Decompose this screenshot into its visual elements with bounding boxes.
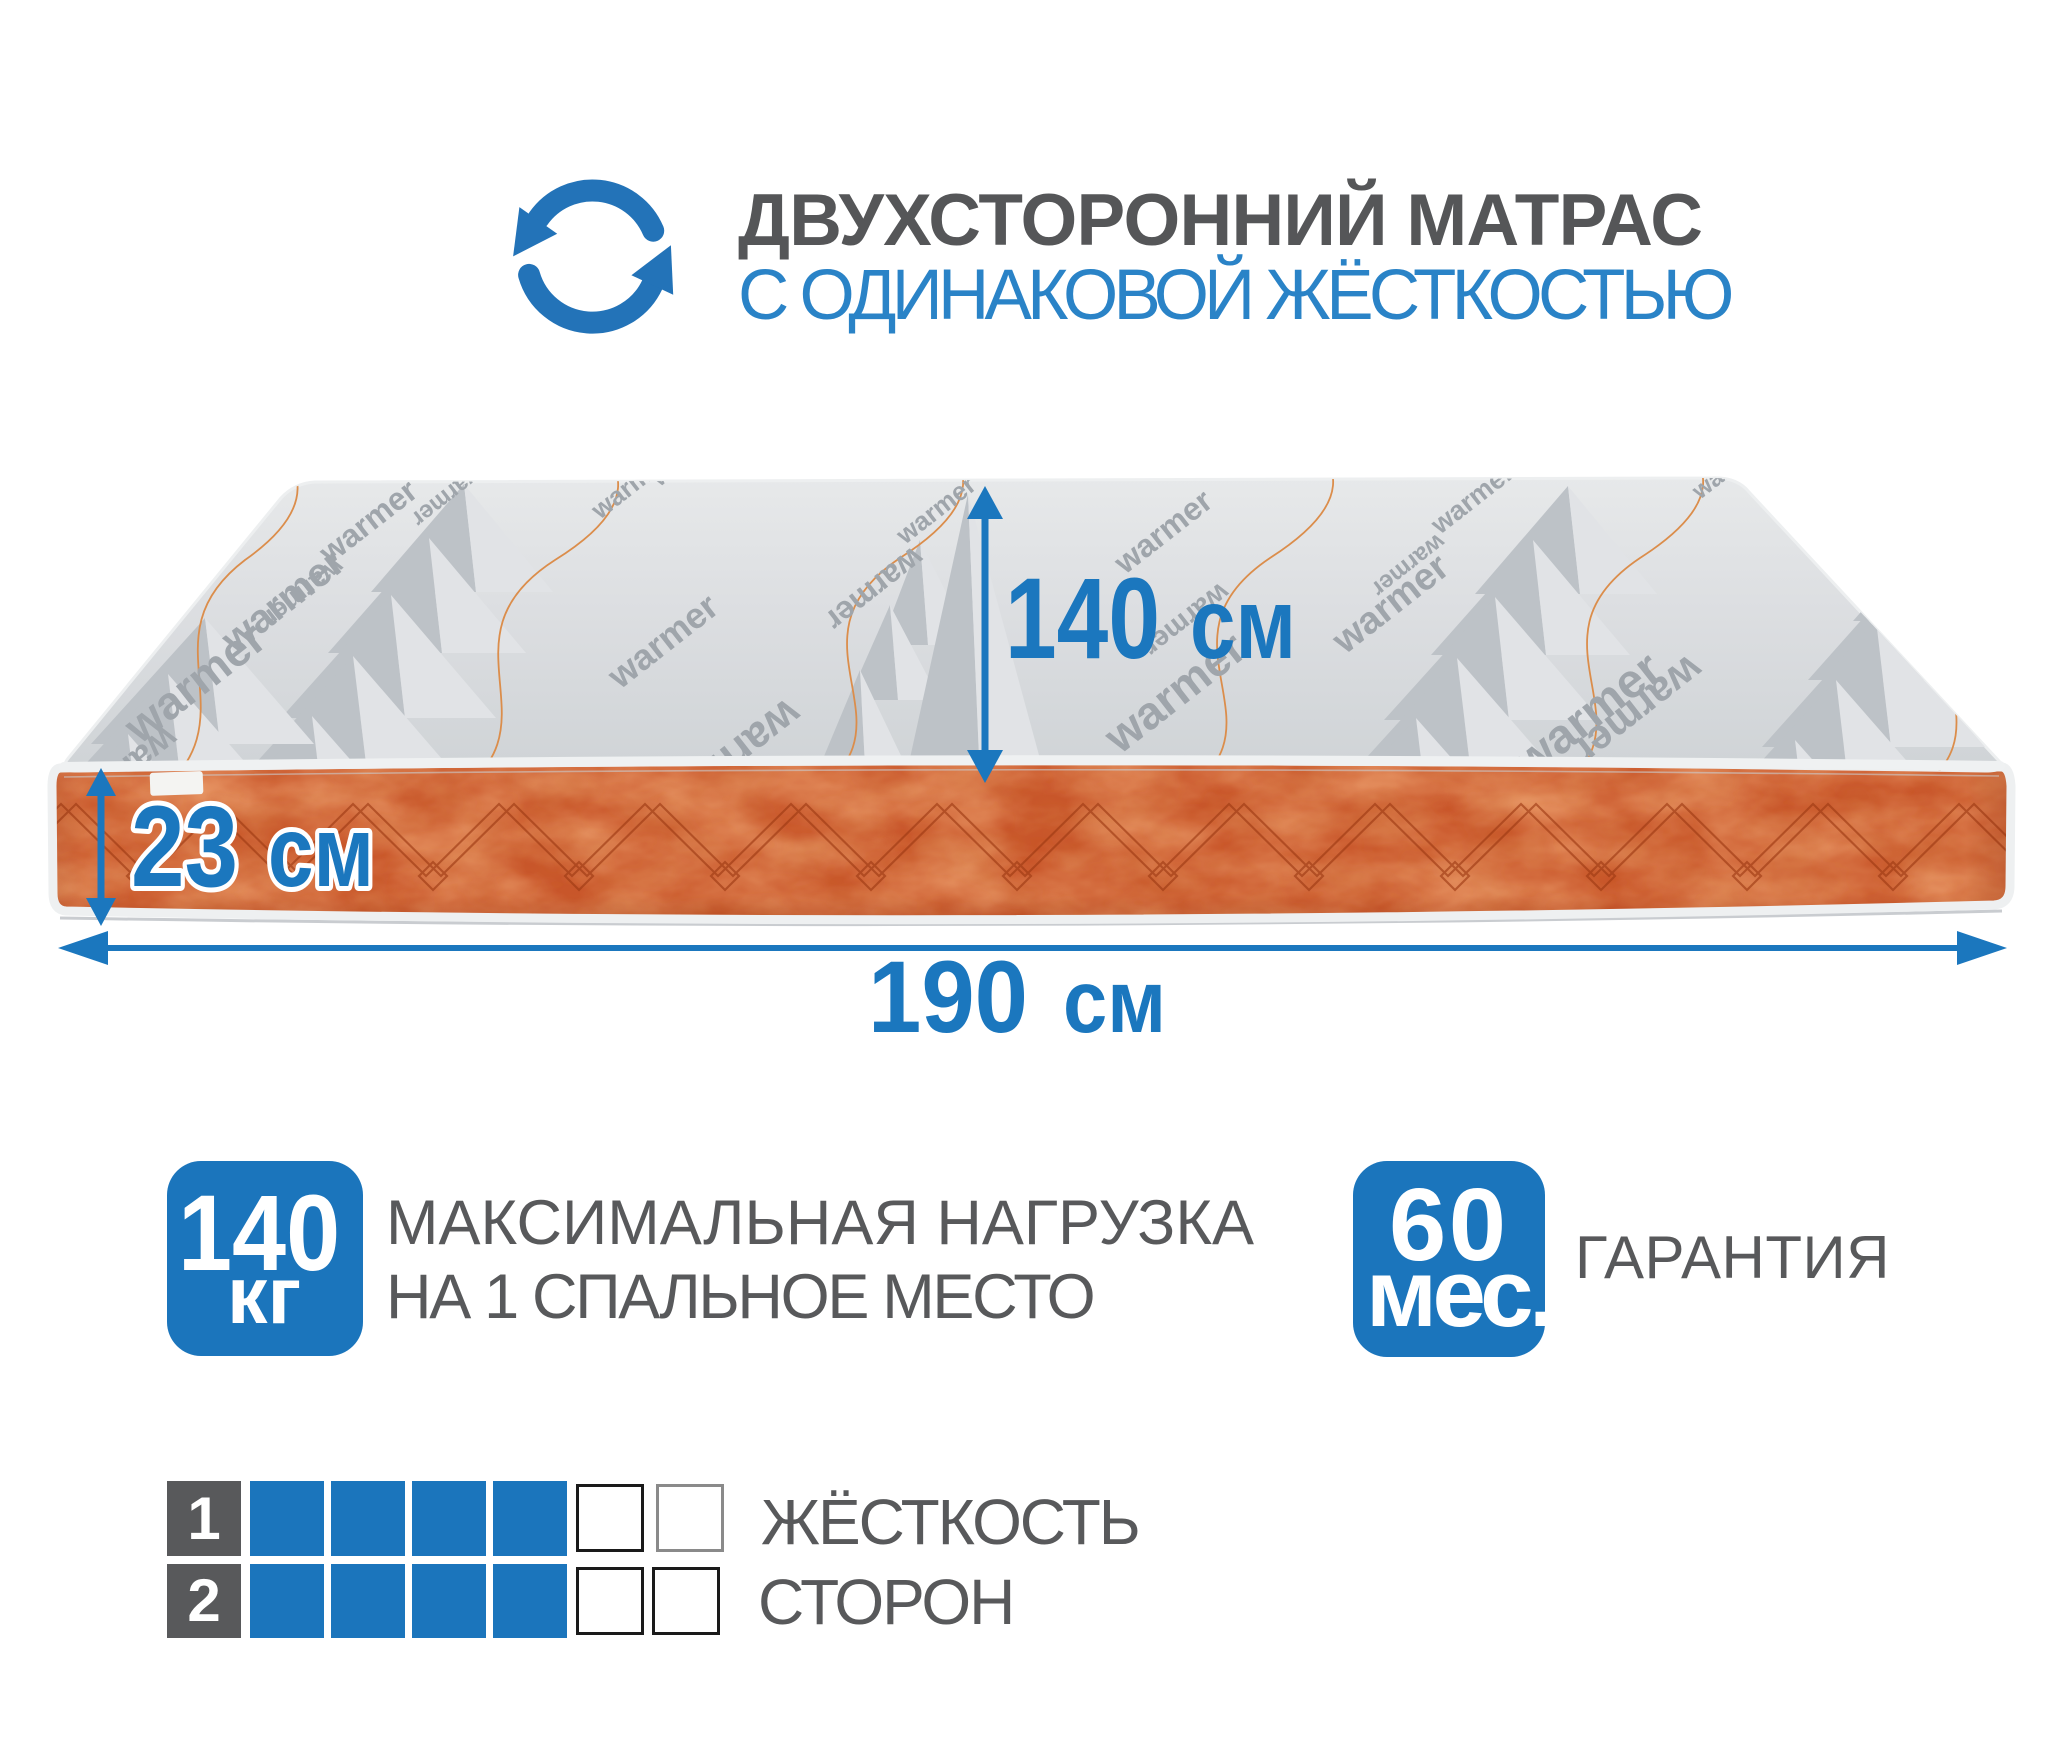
svg-text:warmer: warmer [1814, 472, 1909, 556]
svg-text:23: 23 [131, 783, 238, 911]
svg-text:warmer: warmer [1919, 571, 2048, 688]
svg-text:140: 140 [1005, 555, 1160, 683]
svg-text:warmer: warmer [1856, 548, 1941, 622]
svg-text:см: см [1190, 568, 1296, 680]
svg-text:190: 190 [868, 940, 1028, 1054]
svg-text:см: см [268, 796, 374, 908]
svg-text:см: см [1063, 951, 1166, 1051]
